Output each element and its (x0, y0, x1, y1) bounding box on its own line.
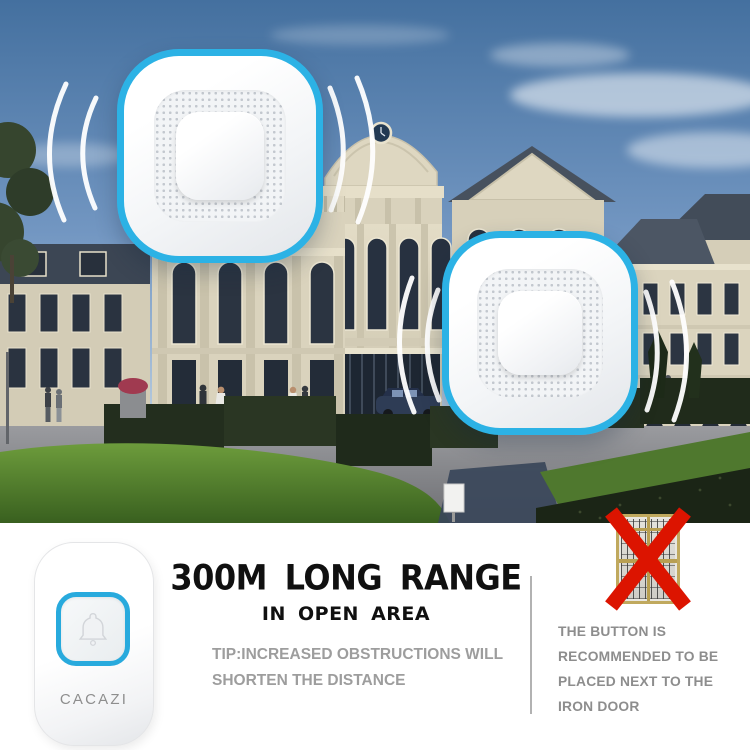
warning-line-3: PLACED NEXT TO THE (558, 669, 750, 694)
vertical-divider (530, 576, 532, 714)
warning-line-2: RECOMMENDED TO BE (558, 644, 750, 669)
bell-icon (75, 609, 111, 649)
tip-text: TIP:INCREASED OBSTRUCTIONS WILL SHORTEN … (168, 642, 524, 694)
headline-subtitle: IN OPEN AREA (168, 603, 524, 625)
wireless-chime-receiver-2 (442, 231, 638, 435)
lamp-post (6, 352, 9, 444)
warning-line-1: THE BUTTON IS (558, 619, 750, 644)
iron-door-warning: THE BUTTON IS RECOMMENDED TO BE PLACED N… (558, 514, 750, 719)
headline-block: 300M LONG RANGE IN OPEN AREA TIP:INCREAS… (168, 558, 524, 694)
building-photo (0, 0, 750, 523)
receiver-front-panel (498, 291, 582, 375)
receiver-front-panel (176, 112, 264, 200)
iron-door-image (616, 514, 680, 604)
product-banner: CACAZI 300M LONG RANGE IN OPEN AREA TIP:… (0, 0, 750, 750)
red-x-mark-icon (599, 504, 697, 614)
tip-line-2: SHORTEN THE DISTANCE (212, 668, 524, 694)
brand-label: CACAZI (35, 691, 153, 708)
warning-line-4: IRON DOOR (558, 694, 750, 719)
wireless-chime-receiver-1 (117, 49, 323, 263)
tip-line-1: TIP:INCREASED OBSTRUCTIONS WILL (212, 642, 524, 668)
bell-push-button (56, 592, 130, 666)
warning-caption: THE BUTTON IS RECOMMENDED TO BE PLACED N… (558, 619, 750, 719)
headline-title: 300M LONG RANGE (168, 558, 524, 597)
planter (118, 378, 148, 418)
mansion-scene (0, 0, 750, 523)
doorbell-button-product: CACAZI (34, 542, 154, 746)
